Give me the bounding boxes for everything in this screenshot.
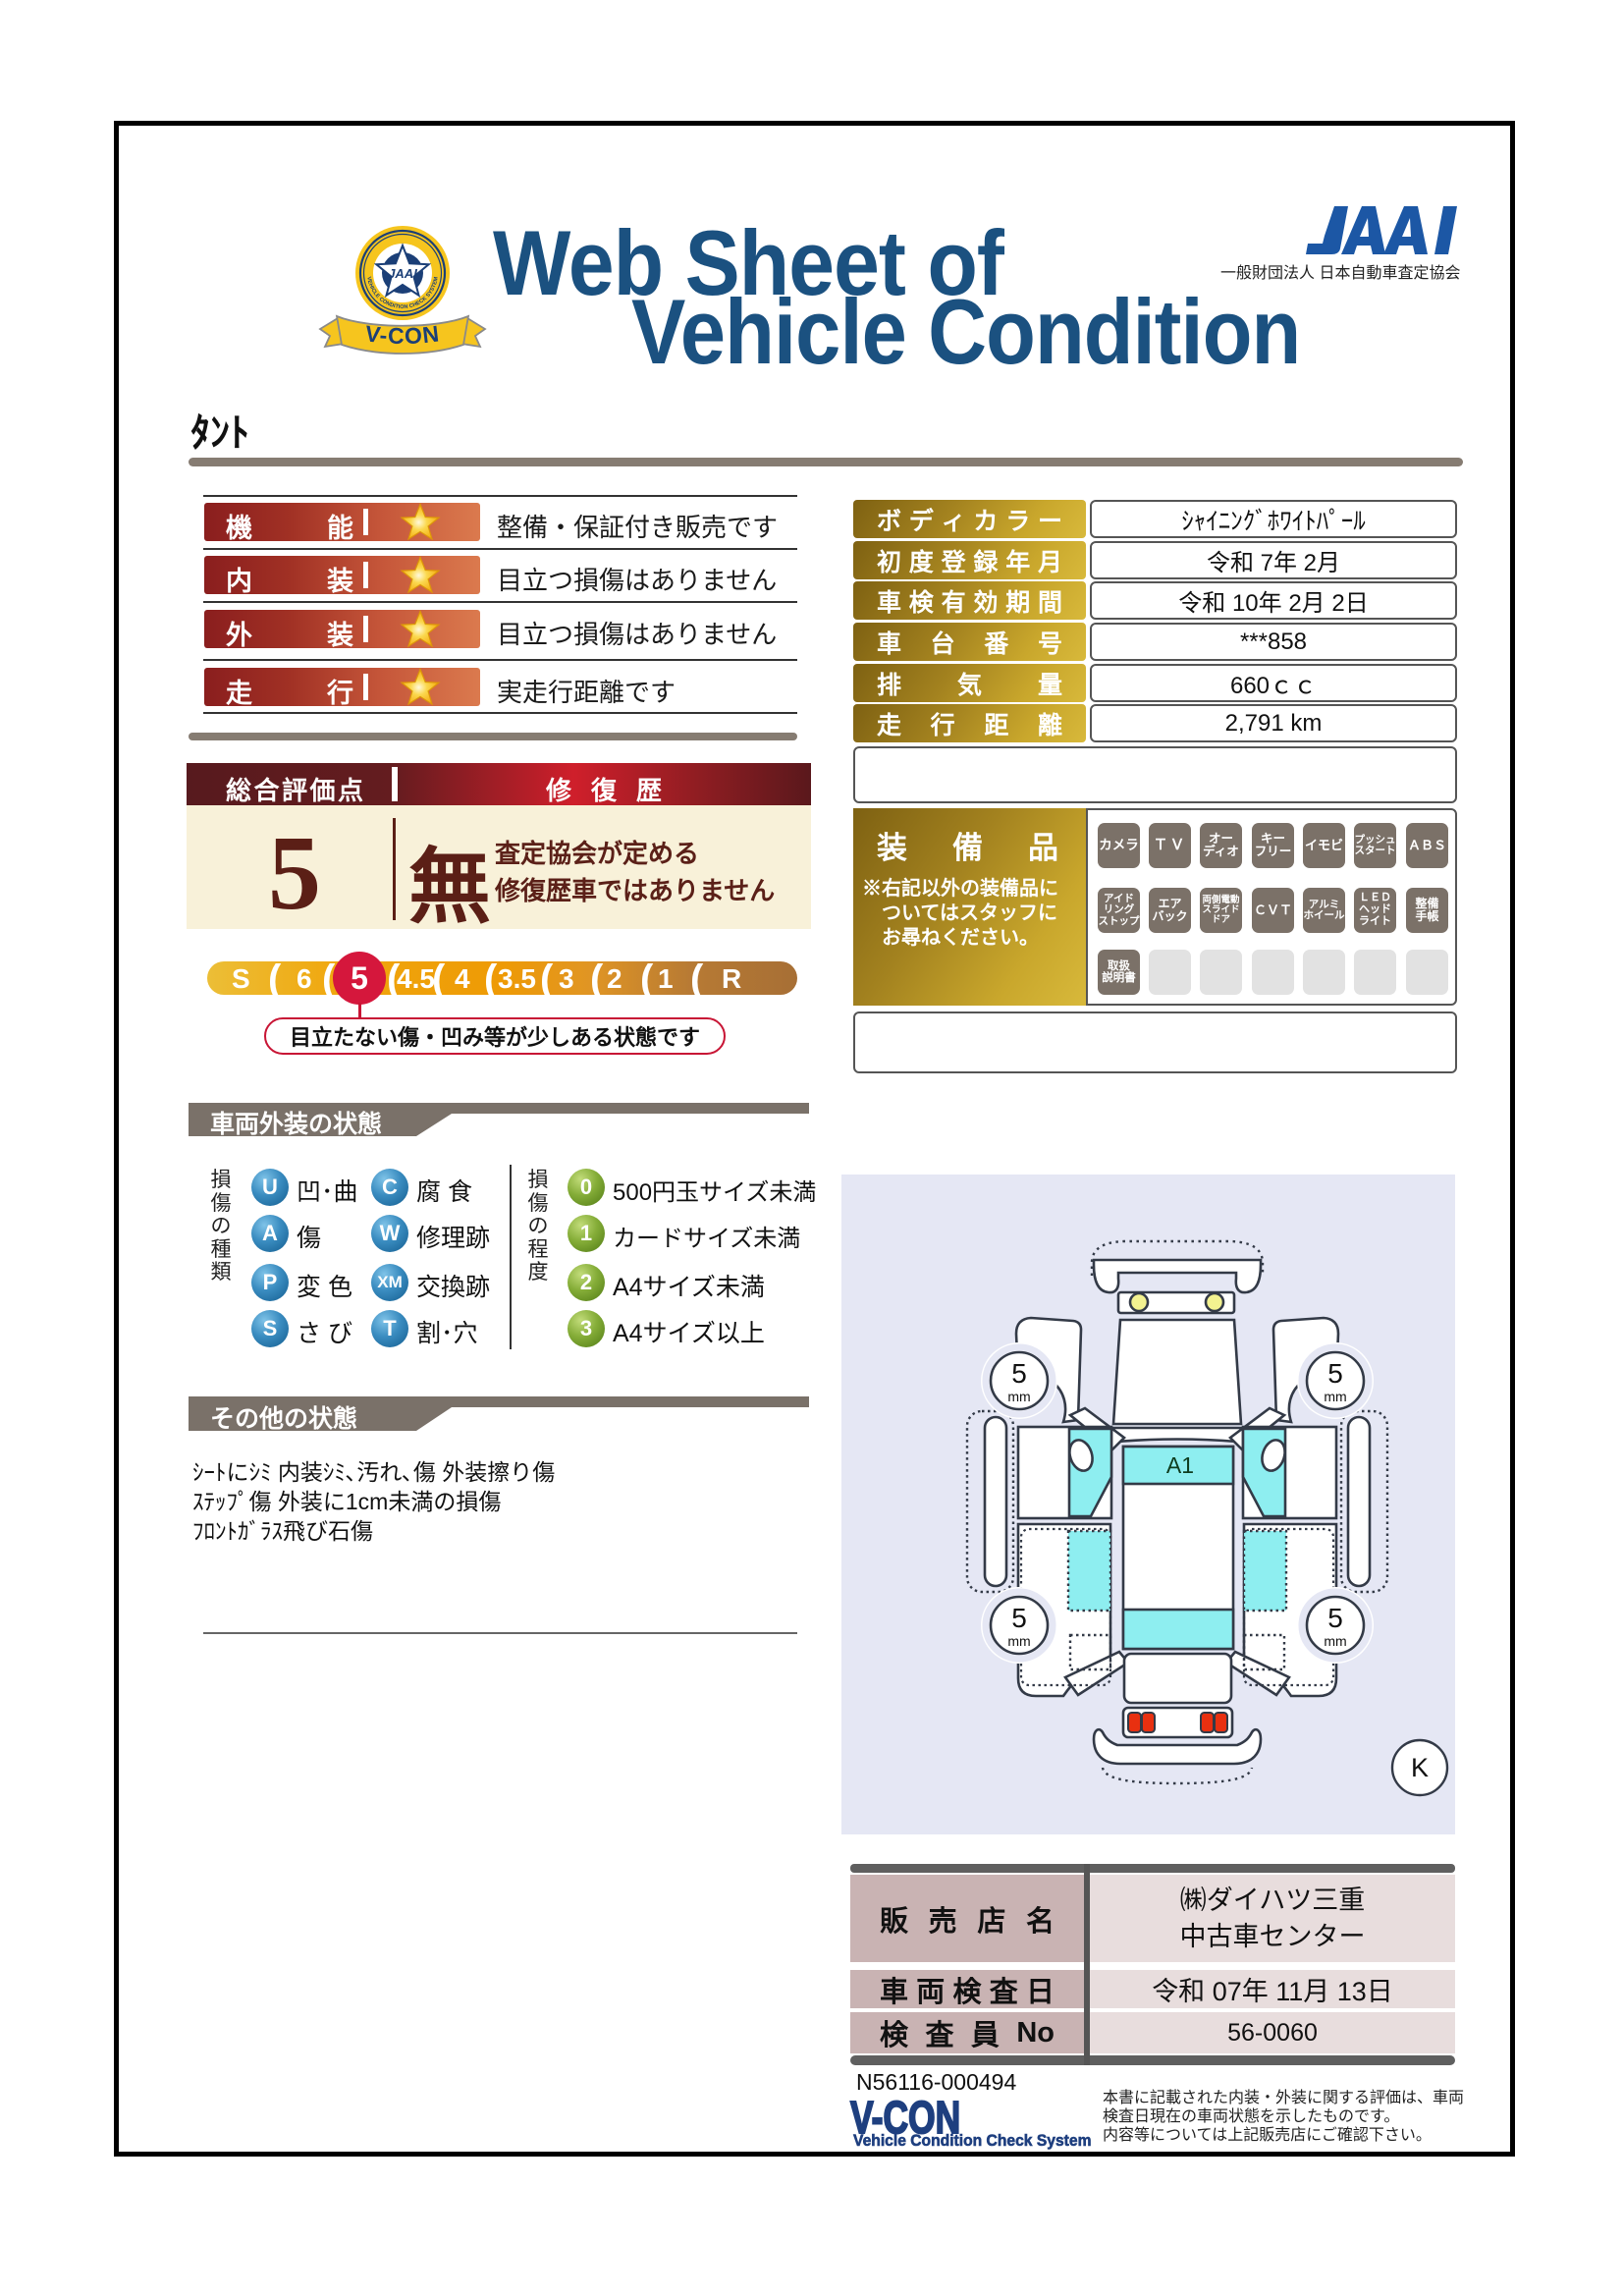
svg-text:mm: mm — [1007, 1389, 1030, 1404]
svg-text:A1: A1 — [1166, 1452, 1194, 1478]
svg-text:5: 5 — [1011, 1603, 1027, 1633]
svg-text:K: K — [1411, 1753, 1429, 1782]
svg-text:mm: mm — [1324, 1633, 1346, 1649]
svg-text:mm: mm — [1007, 1633, 1030, 1649]
svg-text:V-CON: V-CON — [364, 320, 442, 349]
svg-text:5: 5 — [1327, 1603, 1343, 1633]
svg-text:mm: mm — [1324, 1389, 1346, 1404]
svg-text:5: 5 — [1327, 1358, 1343, 1389]
svg-text:JAAI: JAAI — [388, 266, 417, 281]
svg-text:5: 5 — [1011, 1358, 1027, 1389]
